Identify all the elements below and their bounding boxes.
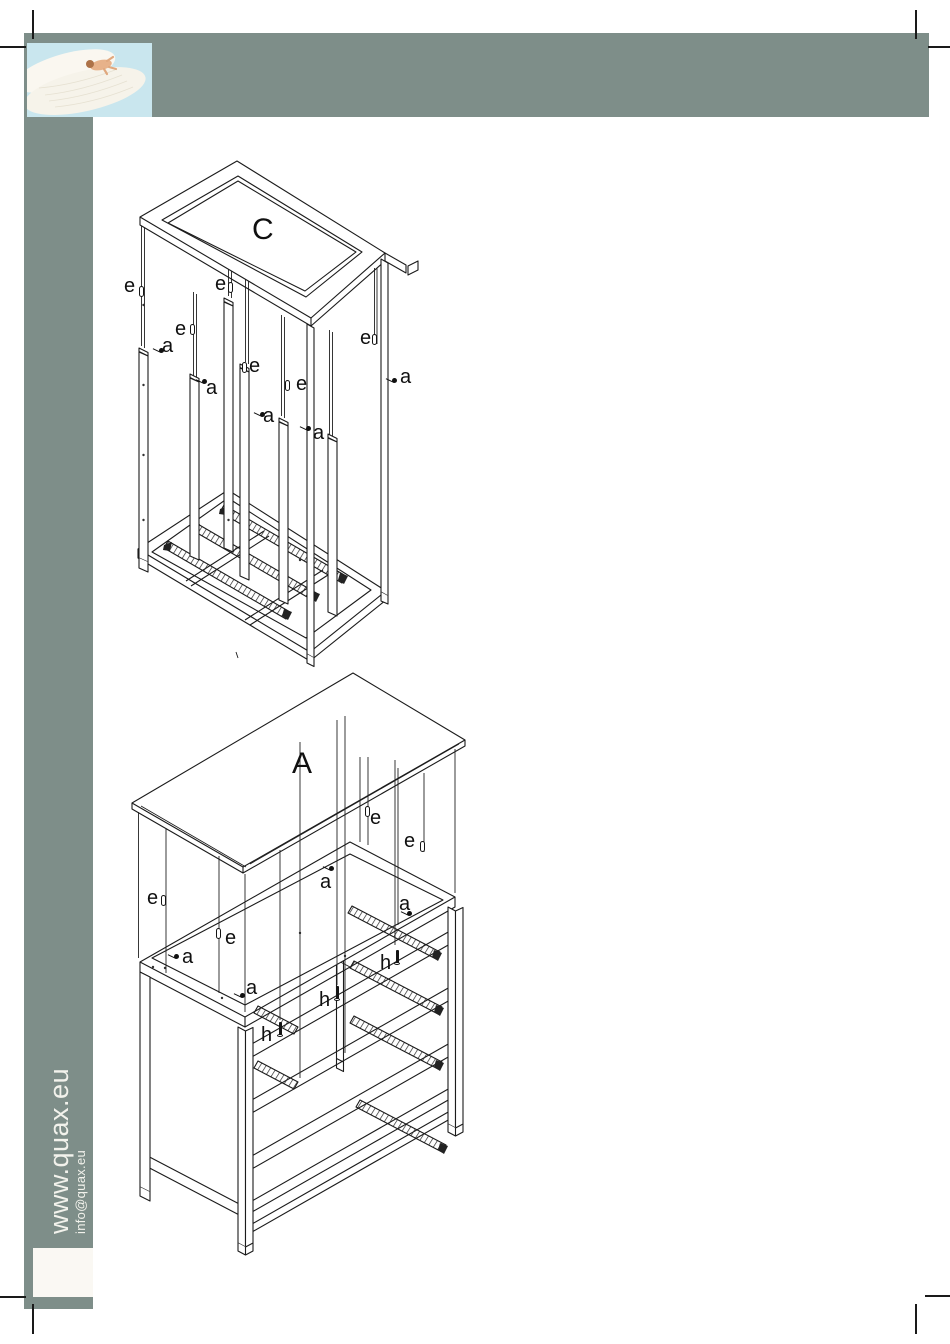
diagram-a	[132, 673, 465, 1255]
instruction-page: www.quax.eu info@quax.eu	[0, 0, 950, 1344]
assembly-diagram-svg	[0, 0, 950, 1344]
diagram-c	[138, 161, 418, 667]
